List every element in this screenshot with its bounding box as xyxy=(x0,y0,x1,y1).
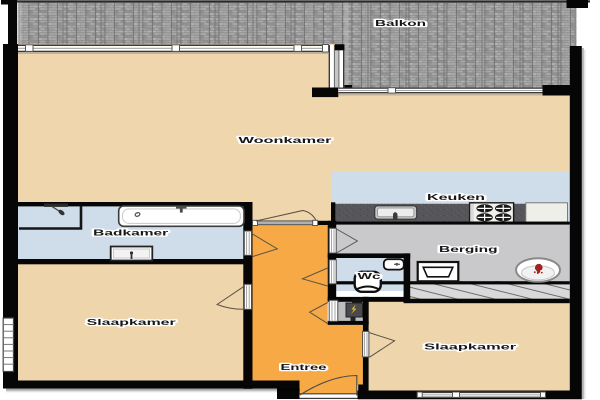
svg-text:Berging: Berging xyxy=(439,245,498,254)
svg-text:Slaapkamer: Slaapkamer xyxy=(424,343,516,352)
svg-text:Slaapkamer: Slaapkamer xyxy=(87,318,176,327)
svg-text:Badkamer: Badkamer xyxy=(93,229,168,238)
svg-text:Keuken: Keuken xyxy=(427,193,485,202)
svg-text:Balkon: Balkon xyxy=(375,19,426,28)
svg-text:Wc: Wc xyxy=(358,272,382,281)
svg-text:Woonkamer: Woonkamer xyxy=(239,135,333,145)
svg-text:Entree: Entree xyxy=(281,363,328,372)
